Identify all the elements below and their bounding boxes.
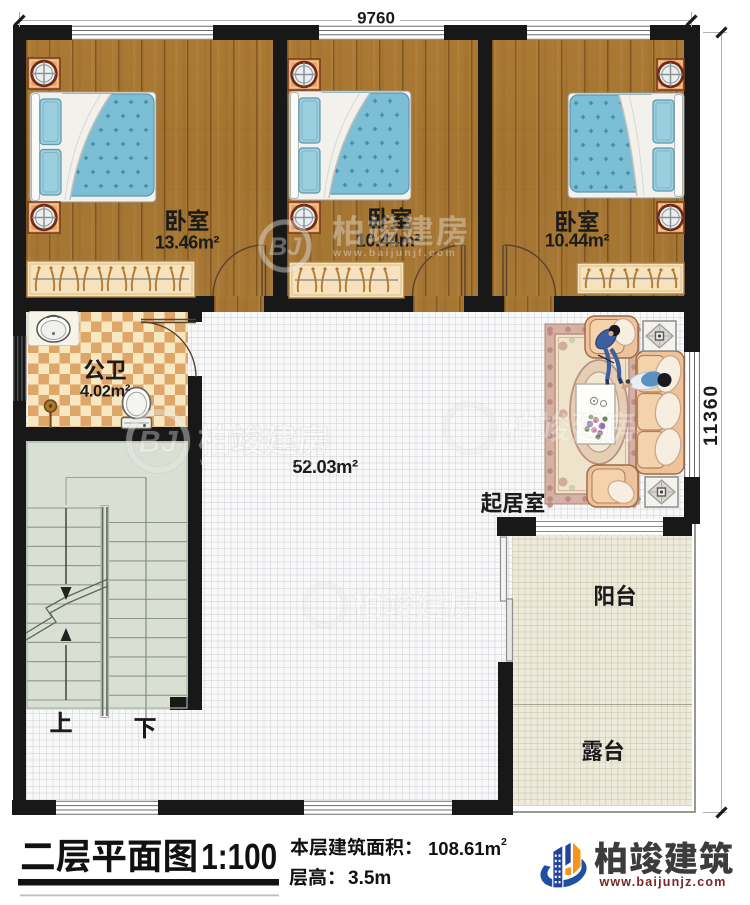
svg-text:4.02m²: 4.02m² [80,383,131,401]
svg-text:3.5m: 3.5m [348,868,391,889]
svg-text:BJ: BJ [269,233,302,261]
svg-text:BJ: BJ [139,425,179,459]
svg-text:www.baijunjz.com: www.baijunjz.com [598,875,726,889]
svg-text:10.44m²: 10.44m² [545,231,610,251]
svg-text:1:100: 1:100 [201,836,277,877]
svg-text:2: 2 [501,836,507,848]
svg-text:www.baijunjf.com: www.baijunjf.com [332,247,457,259]
svg-text:9760: 9760 [357,9,395,28]
svg-text:11360: 11360 [700,384,722,446]
svg-text:www.baijunjf.com: www.baijunjf.com [199,457,317,468]
svg-text:www.baijunjf.com: www.baijunjf.com [353,620,459,630]
svg-text:13.46m²: 13.46m² [155,233,220,253]
svg-text:108.61m: 108.61m [428,838,501,859]
